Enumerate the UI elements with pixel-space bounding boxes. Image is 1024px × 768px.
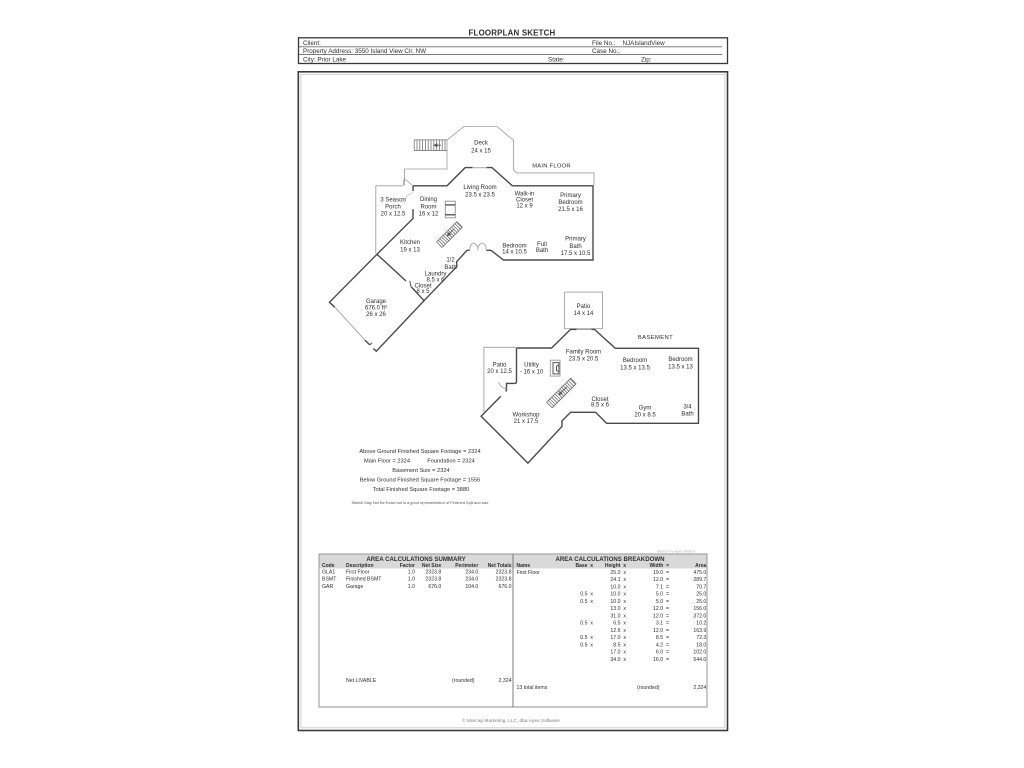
svg-text:Above Ground Finished Square F: Above Ground Finished Square Footage = 2… <box>359 449 480 455</box>
svg-text:Gym: Gym <box>639 406 652 412</box>
svg-text:13.5 x 13: 13.5 x 13 <box>668 365 693 371</box>
svg-text:19 x 13: 19 x 13 <box>400 248 420 254</box>
svg-text:Name: Name <box>517 563 531 569</box>
svg-text:21 x 17.5: 21 x 17.5 <box>514 419 539 425</box>
svg-text:676.0: 676.0 <box>428 584 441 590</box>
svg-text:File No.: NJAIslandView: File No.: NJAIslandView <box>592 40 665 47</box>
svg-text:3/4: 3/4 <box>683 405 692 411</box>
svg-text:34.0 x: 34.0 x <box>610 657 626 663</box>
svg-text:Below Ground Finished Square F: Below Ground Finished Square Footage = 1… <box>360 477 481 483</box>
svg-text:1.0: 1.0 <box>408 584 415 590</box>
svg-text:Bath: Bath <box>681 412 693 418</box>
svg-text:1.0: 1.0 <box>408 569 415 575</box>
svg-text:13 total items: 13 total items <box>517 685 548 691</box>
svg-text:26 x 26: 26 x 26 <box>366 312 386 318</box>
svg-text:Area: Area <box>695 563 706 569</box>
svg-text:17.5 x 10.5: 17.5 x 10.5 <box>561 251 591 257</box>
svg-text:676.0 ft²: 676.0 ft² <box>365 306 387 312</box>
svg-text:14 x 10.5: 14 x 10.5 <box>502 250 527 256</box>
svg-text:Kitchen: Kitchen <box>400 240 420 246</box>
svg-text:AREA CALCULATIONS SUMMARY: AREA CALCULATIONS SUMMARY <box>366 556 465 563</box>
svg-text:12 x 9: 12 x 9 <box>516 204 533 210</box>
svg-text:Basement Size = 2324: Basement Size = 2324 <box>392 468 449 474</box>
svg-text:Workshop: Workshop <box>513 413 541 419</box>
svg-text:2323.8: 2323.8 <box>425 569 441 575</box>
svg-text:Total Finished Square Footage: Total Finished Square Footage = 3880 <box>373 487 470 493</box>
svg-text:Dining: Dining <box>420 197 437 203</box>
svg-text:Net LIVABLE: Net LIVABLE <box>346 678 377 684</box>
svg-text:475.0: 475.0 <box>693 570 706 576</box>
svg-text:(rounded): (rounded) <box>637 685 660 691</box>
svg-text:6.0 =: 6.0 = <box>656 650 669 656</box>
svg-text:104.0: 104.0 <box>465 584 478 590</box>
svg-text:12.0 =: 12.0 = <box>653 613 669 619</box>
svg-text:12.0 =: 12.0 = <box>653 606 669 612</box>
svg-text:12.6 x: 12.6 x <box>610 628 626 634</box>
svg-text:2,324: 2,324 <box>499 678 512 684</box>
svg-text:20 x 12.5: 20 x 12.5 <box>487 369 512 375</box>
svg-text:Garage: Garage <box>346 584 363 590</box>
svg-text:25.0: 25.0 <box>696 599 706 605</box>
svg-text:GLA1: GLA1 <box>322 569 335 575</box>
svg-text:Main Floor = 2324: Main Floor = 2324 <box>364 458 410 464</box>
svg-text:8.5 x: 8.5 x <box>613 642 626 648</box>
svg-text:Bath: Bath <box>536 248 548 254</box>
svg-text:Bedroom: Bedroom <box>668 357 692 363</box>
svg-text:0.5 x: 0.5 x <box>580 621 593 627</box>
svg-text:Net Size: Net Size <box>422 563 442 569</box>
svg-text:21.5 x 16: 21.5 x 16 <box>558 207 583 213</box>
svg-text:8.5 x 6: 8.5 x 6 <box>591 403 610 409</box>
svg-text:Garage: Garage <box>366 299 387 305</box>
svg-text:2323.8: 2323.8 <box>496 569 512 575</box>
svg-text:2323.8: 2323.8 <box>425 577 441 583</box>
svg-text:10.0 x: 10.0 x <box>610 592 626 598</box>
svg-text:Patio: Patio <box>577 304 591 310</box>
svg-text:14 x 14: 14 x 14 <box>574 311 594 317</box>
svg-text:234.0: 234.0 <box>465 569 478 575</box>
svg-text:Bath: Bath <box>444 265 456 271</box>
svg-text:GAR: GAR <box>322 584 333 590</box>
svg-text:102.0: 102.0 <box>693 650 706 656</box>
svg-text:70.7: 70.7 <box>696 584 706 590</box>
svg-text:23.5 x 20.5: 23.5 x 20.5 <box>569 357 599 363</box>
svg-text:0.5 x: 0.5 x <box>580 599 593 605</box>
svg-text:Base x: Base x <box>575 563 593 569</box>
svg-text:25.0: 25.0 <box>696 592 706 598</box>
svg-text:7.1 =: 7.1 = <box>656 584 669 590</box>
svg-text:3.1 =: 3.1 = <box>656 621 669 627</box>
svg-text:First Floor: First Floor <box>517 570 541 576</box>
svg-text:© Marcap Marketing, LLC, dba A: © Marcap Marketing, LLC, dba Apex Softwa… <box>462 717 560 724</box>
svg-text:25.0 x: 25.0 x <box>610 570 626 576</box>
svg-text:State:: State: <box>548 56 565 63</box>
svg-text:Code: Code <box>322 563 335 569</box>
svg-text:6.5 x: 6.5 x <box>613 621 626 627</box>
svg-text:31.0 x: 31.0 x <box>610 613 626 619</box>
svg-text:17.0 x: 17.0 x <box>610 635 626 641</box>
svg-text:Height x: Height x <box>605 563 626 569</box>
svg-text:Sketch by Apex Sketch: Sketch by Apex Sketch <box>657 550 696 554</box>
svg-text:20 x 12.5: 20 x 12.5 <box>381 212 406 218</box>
svg-text:24.1 x: 24.1 x <box>610 577 626 583</box>
svg-text:18.0: 18.0 <box>696 642 706 648</box>
svg-text:Bedroom: Bedroom <box>558 200 582 206</box>
svg-text:Foundation = 2324: Foundation = 2324 <box>427 458 475 464</box>
svg-text:24 x 15: 24 x 15 <box>471 149 491 155</box>
svg-text:- 16 x 10: - 16 x 10 <box>520 370 544 376</box>
svg-text:544.0: 544.0 <box>693 657 706 663</box>
svg-text:City: Prior Lake: City: Prior Lake <box>303 56 347 63</box>
svg-text:Case No.:: Case No.: <box>592 48 620 55</box>
svg-text:BASEMENT: BASEMENT <box>638 335 673 341</box>
svg-text:289.7: 289.7 <box>693 577 706 583</box>
svg-text:0.5 x: 0.5 x <box>580 635 593 641</box>
svg-text:1.0: 1.0 <box>408 577 415 583</box>
svg-text:2323.8: 2323.8 <box>496 577 512 583</box>
svg-text:13.5 x 13.5: 13.5 x 13.5 <box>620 366 650 372</box>
svg-text:FLOORPLAN SKETCH: FLOORPLAN SKETCH <box>469 29 556 38</box>
svg-text:Room: Room <box>420 205 436 211</box>
svg-text:5.0 =: 5.0 = <box>656 592 669 598</box>
svg-text:234.0: 234.0 <box>465 577 478 583</box>
svg-text:Primary: Primary <box>560 193 581 199</box>
svg-text:13.0 x: 13.0 x <box>610 606 626 612</box>
svg-text:Width =: Width = <box>649 563 669 569</box>
svg-text:10.0 x: 10.0 x <box>610 584 626 590</box>
svg-text:0.5 x: 0.5 x <box>580 592 593 598</box>
svg-text:BSMT: BSMT <box>322 577 337 583</box>
svg-text:19.0 =: 19.0 = <box>653 570 669 576</box>
svg-text:Primary: Primary <box>565 236 586 242</box>
svg-text:MAIN FLOOR: MAIN FLOOR <box>532 163 571 169</box>
svg-text:Bedroom: Bedroom <box>623 358 647 364</box>
svg-text:Patio: Patio <box>493 363 507 369</box>
svg-text:1/2: 1/2 <box>446 258 455 264</box>
svg-text:AREA CALCULATIONS BREAKDOWN: AREA CALCULATIONS BREAKDOWN <box>555 556 664 563</box>
svg-text:8.5 =: 8.5 = <box>656 635 669 641</box>
svg-text:676.0: 676.0 <box>499 584 512 590</box>
svg-text:23.5 x 23.5: 23.5 x 23.5 <box>465 193 495 199</box>
svg-text:Utility: Utility <box>524 363 539 369</box>
svg-text:12.0 =: 12.0 = <box>653 577 669 583</box>
svg-text:Finished BSMT: Finished BSMT <box>346 577 382 583</box>
svg-text:2,324: 2,324 <box>693 685 706 691</box>
svg-text:Porch: Porch <box>385 205 401 211</box>
svg-text:Living Room: Living Room <box>463 185 496 191</box>
svg-text:(rounded): (rounded) <box>452 678 475 684</box>
svg-text:10.0 x: 10.0 x <box>610 599 626 605</box>
svg-text:16.0 =: 16.0 = <box>653 657 669 663</box>
svg-text:10.2: 10.2 <box>696 621 706 627</box>
svg-text:Property Address: 3550 Island: Property Address: 3550 Island View Cir. … <box>303 48 426 55</box>
svg-text:5.0 =: 5.0 = <box>656 599 669 605</box>
svg-text:12.0 =: 12.0 = <box>653 628 669 634</box>
svg-text:Sketch May Not Be Exact but is: Sketch May Not Be Exact but is a good re… <box>351 500 488 505</box>
svg-text:Net Totals: Net Totals <box>488 563 512 569</box>
svg-text:Deck: Deck <box>474 141 489 147</box>
svg-text:156.0: 156.0 <box>693 606 706 612</box>
svg-text:17.0 x: 17.0 x <box>610 650 626 656</box>
svg-text:3 Season: 3 Season <box>380 198 405 204</box>
svg-text:0.5 x: 0.5 x <box>580 642 593 648</box>
svg-text:20 x 8.5: 20 x 8.5 <box>634 413 656 419</box>
svg-text:16 x 12: 16 x 12 <box>419 212 439 218</box>
svg-text:Client:: Client: <box>303 40 321 47</box>
svg-text:72.3: 72.3 <box>696 635 706 641</box>
svg-text:372.0: 372.0 <box>693 613 706 619</box>
svg-text:Family Room: Family Room <box>566 349 601 355</box>
svg-text:163.9: 163.9 <box>693 628 706 634</box>
svg-text:Zip:: Zip: <box>641 56 652 63</box>
svg-text:4.2 =: 4.2 = <box>656 642 669 648</box>
svg-text:Factor: Factor <box>400 563 415 569</box>
svg-text:Bath: Bath <box>569 244 581 250</box>
svg-text:Perimeter: Perimeter <box>455 563 478 569</box>
svg-text:Description: Description <box>346 563 374 569</box>
svg-text:First Floor: First Floor <box>346 569 370 575</box>
